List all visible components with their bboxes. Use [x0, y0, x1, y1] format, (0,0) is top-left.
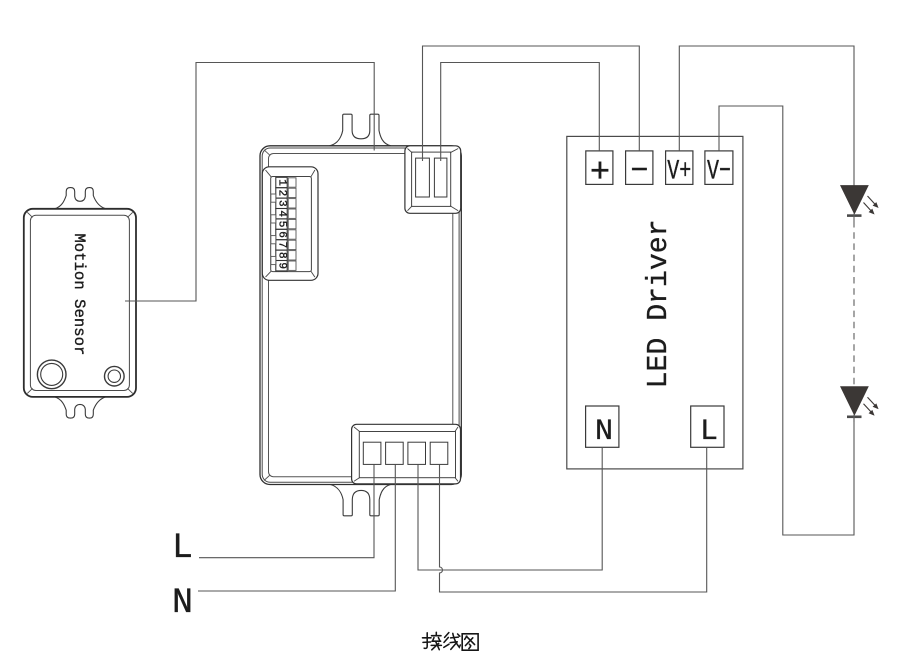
- svg-text:Motion Sensor: Motion Sensor: [70, 233, 88, 355]
- svg-text:V−: V−: [707, 157, 731, 188]
- svg-text:V+: V+: [667, 157, 691, 188]
- svg-text:6: 6: [276, 231, 288, 238]
- svg-text:L: L: [172, 528, 193, 568]
- svg-text:4: 4: [276, 210, 288, 217]
- svg-text:N: N: [172, 583, 193, 623]
- svg-text:3: 3: [276, 200, 288, 207]
- svg-text:+: +: [590, 155, 610, 193]
- svg-text:5: 5: [276, 221, 288, 228]
- svg-text:N: N: [595, 415, 613, 449]
- svg-text:7: 7: [276, 242, 288, 249]
- svg-text:−: −: [630, 155, 648, 189]
- svg-text:L: L: [700, 415, 718, 449]
- svg-text:2: 2: [276, 190, 288, 197]
- svg-text:9: 9: [276, 262, 288, 269]
- svg-text:1: 1: [276, 179, 288, 186]
- svg-text:LED Driver: LED Driver: [642, 219, 675, 388]
- svg-text:8: 8: [276, 252, 288, 259]
